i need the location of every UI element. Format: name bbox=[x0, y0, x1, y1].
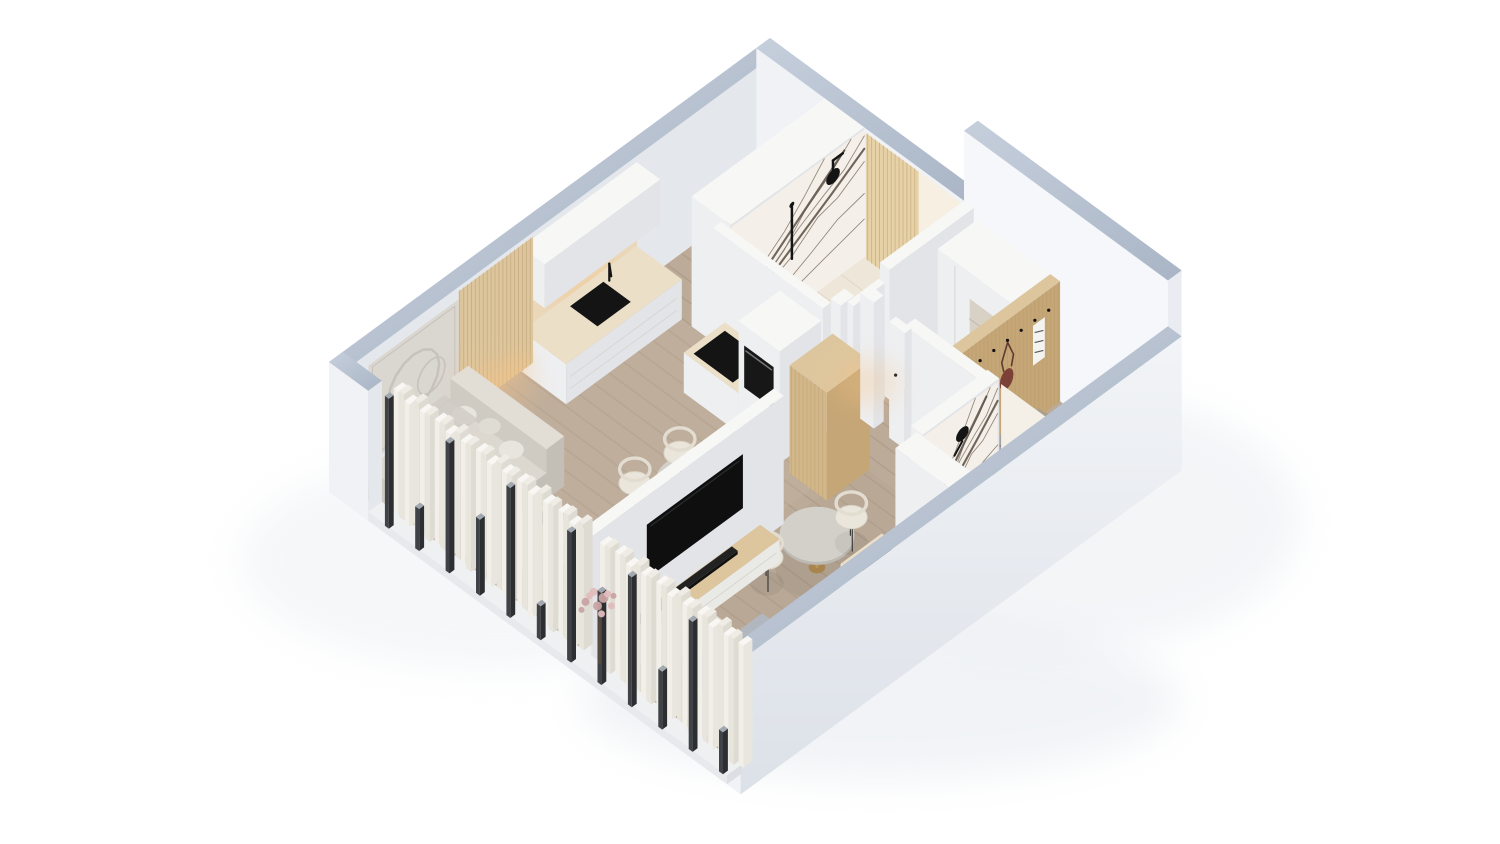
isometric-apartment-svg bbox=[0, 0, 1500, 844]
apartment-render-stage: Isometric apartment cutaway render bbox=[0, 0, 1500, 844]
